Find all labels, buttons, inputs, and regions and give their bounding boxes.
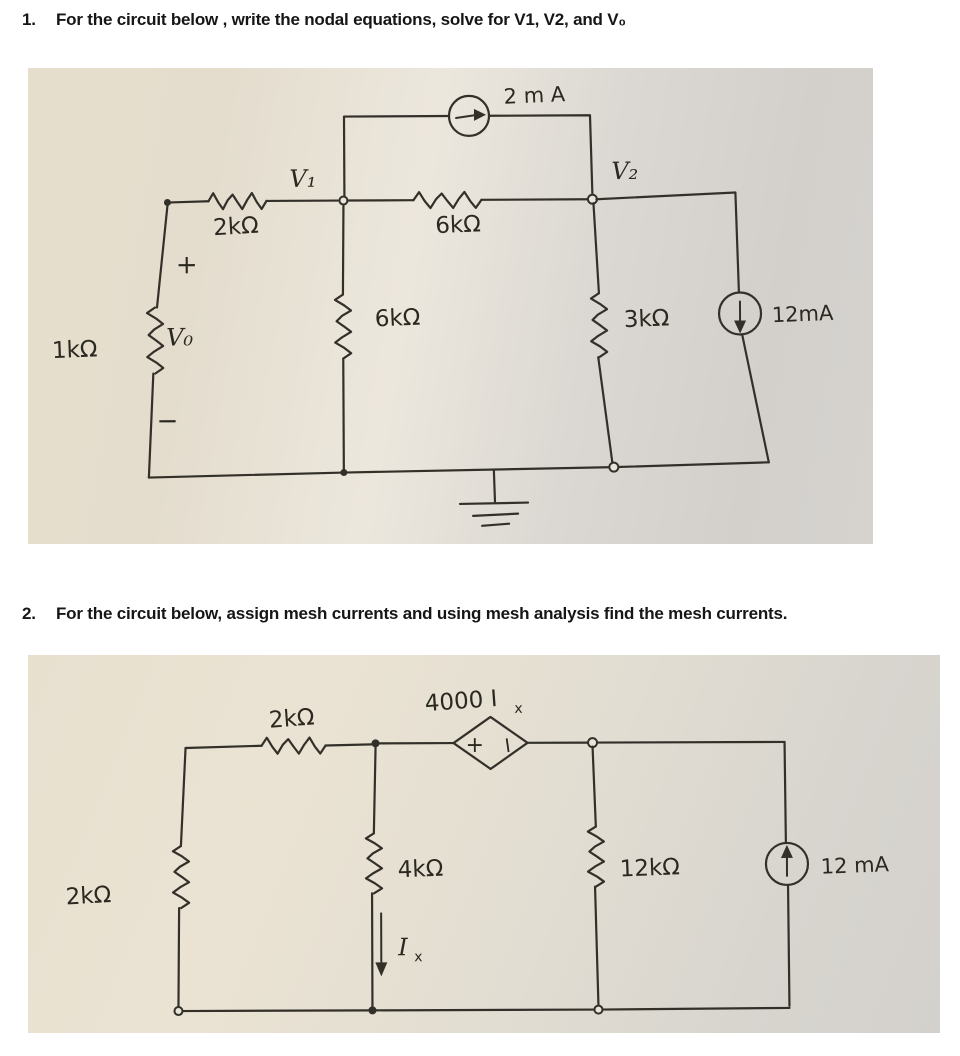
wire-segment	[598, 357, 613, 466]
circuit-2-drawing: 2kΩ + − 4000 I x 2k	[28, 655, 940, 1033]
label-12ma: 12mA	[771, 301, 834, 327]
ix-arrow-head-icon	[375, 962, 387, 976]
resistor-1k-branch: + V₀ − 1kΩ	[51, 205, 199, 478]
label-v1: V₁	[289, 165, 316, 193]
resistor-6k-top-branch: 6kΩ	[347, 191, 588, 239]
label-v2: V₂	[611, 157, 638, 185]
label-2k-top: 2kΩ	[268, 704, 315, 733]
wire-segment	[742, 334, 769, 462]
dependent-source-branch: + − 4000 I x	[424, 685, 785, 769]
worksheet-page: 1. For the circuit below , write the nod…	[0, 0, 960, 1056]
wire-segment	[181, 748, 186, 846]
label-1k: 1kΩ	[51, 336, 98, 364]
node-dot	[174, 1007, 182, 1015]
wire-segment	[595, 887, 598, 1006]
label-4000ix: 4000 I	[424, 686, 498, 717]
dep-plus-mark: +	[466, 733, 485, 758]
wire-segment	[178, 908, 179, 1007]
label-plus: +	[176, 250, 198, 280]
wire-segment	[343, 359, 344, 473]
wire-segment	[785, 742, 786, 843]
question-1-number: 1.	[22, 10, 36, 30]
wire-segment	[374, 747, 376, 833]
question-2-text: For the circuit below, assign mesh curre…	[56, 604, 787, 624]
dep-minus-mark: −	[494, 734, 521, 756]
label-minus: −	[157, 406, 179, 436]
arrow-down-head-icon	[734, 320, 746, 333]
label-ix-sub: x	[414, 949, 422, 965]
resistor-4k-branch: 4kΩ I x	[366, 747, 445, 1006]
current-source-2ma-branch: 2 m A	[344, 82, 593, 196]
label-2ma: 2 m A	[503, 82, 566, 108]
wire-segment	[481, 199, 588, 200]
ground-bar	[473, 514, 518, 516]
label-4k: 4kΩ	[397, 856, 443, 884]
ground-stem	[494, 470, 495, 503]
bottom-wire	[149, 462, 769, 478]
resistor-2k-icon	[208, 193, 266, 209]
ground-bar	[460, 503, 528, 504]
node-v1-dot	[339, 197, 347, 205]
arrow-right-icon	[456, 115, 477, 118]
question-2-number: 2.	[22, 604, 36, 624]
resistor-6k-mid-branch: 6kΩ	[334, 204, 421, 472]
ground-bar	[482, 524, 509, 526]
label-6k-mid: 6kΩ	[374, 305, 421, 333]
question-1-text: For the circuit below , write the nodal …	[56, 10, 626, 30]
node-dot	[594, 1006, 602, 1014]
label-6k-top: 6kΩ	[435, 211, 482, 239]
resistor-2k-left-icon	[173, 846, 189, 908]
wire-segment	[342, 205, 343, 295]
wire-segment	[170, 201, 208, 202]
wire-segment	[598, 742, 785, 743]
top-wire: 2kΩ	[185, 704, 453, 754]
label-4000ix-sub: x	[514, 701, 522, 717]
arrow-right-head-icon	[474, 109, 486, 121]
resistor-2k-left-branch: 2kΩ	[65, 748, 190, 1007]
arrow-up-head-icon	[781, 845, 793, 858]
resistor-6k-top-icon	[413, 192, 481, 208]
wire-segment	[788, 885, 789, 1006]
wire-segment	[186, 746, 262, 748]
resistor-3k-branch: 3kΩ	[590, 203, 670, 466]
photo-circuit-2: 2kΩ + − 4000 I x 2k	[28, 655, 940, 1033]
label-3k: 3kΩ	[623, 305, 670, 333]
wire-segment	[178, 1008, 789, 1011]
resistor-1k-icon	[147, 307, 163, 373]
bottom-wire	[174, 1005, 789, 1015]
current-source-12ma-branch: 12 mA	[766, 742, 891, 1006]
ground-icon	[460, 470, 528, 526]
resistor-2k-branch: 2kΩ	[164, 193, 339, 242]
node-dot	[340, 469, 347, 476]
label-12ma: 12 mA	[820, 852, 890, 879]
resistor-4k-icon	[366, 833, 382, 893]
wire-segment	[149, 462, 769, 477]
wire-segment	[148, 374, 154, 478]
label-ix: I	[397, 933, 408, 961]
resistor-12k-branch: 12kΩ	[588, 746, 681, 1005]
resistor-12k-icon	[588, 827, 604, 887]
label-vo: V₀	[166, 323, 193, 351]
wire-segment	[489, 115, 592, 196]
resistor-3k-icon	[591, 293, 607, 357]
node-dot	[609, 463, 618, 472]
label-12k: 12kΩ	[619, 854, 680, 882]
circuit-1-drawing: 2 m A 2kΩ V₁ 6kΩ	[28, 68, 873, 544]
wire-segment	[593, 203, 598, 293]
wire-segment	[593, 747, 596, 827]
label-2k: 2kΩ	[212, 213, 259, 242]
resistor-6k-mid-icon	[335, 295, 351, 359]
node-dot	[372, 739, 380, 747]
photo-circuit-1: 2 m A 2kΩ V₁ 6kΩ	[28, 68, 873, 544]
wire-segment	[326, 744, 372, 745]
wire-segment	[156, 205, 168, 307]
wire-segment	[344, 116, 449, 197]
node-dot	[368, 1006, 376, 1014]
resistor-2k-top-icon	[262, 738, 326, 754]
wire-segment	[596, 192, 739, 293]
label-2k-left: 2kΩ	[65, 882, 112, 911]
